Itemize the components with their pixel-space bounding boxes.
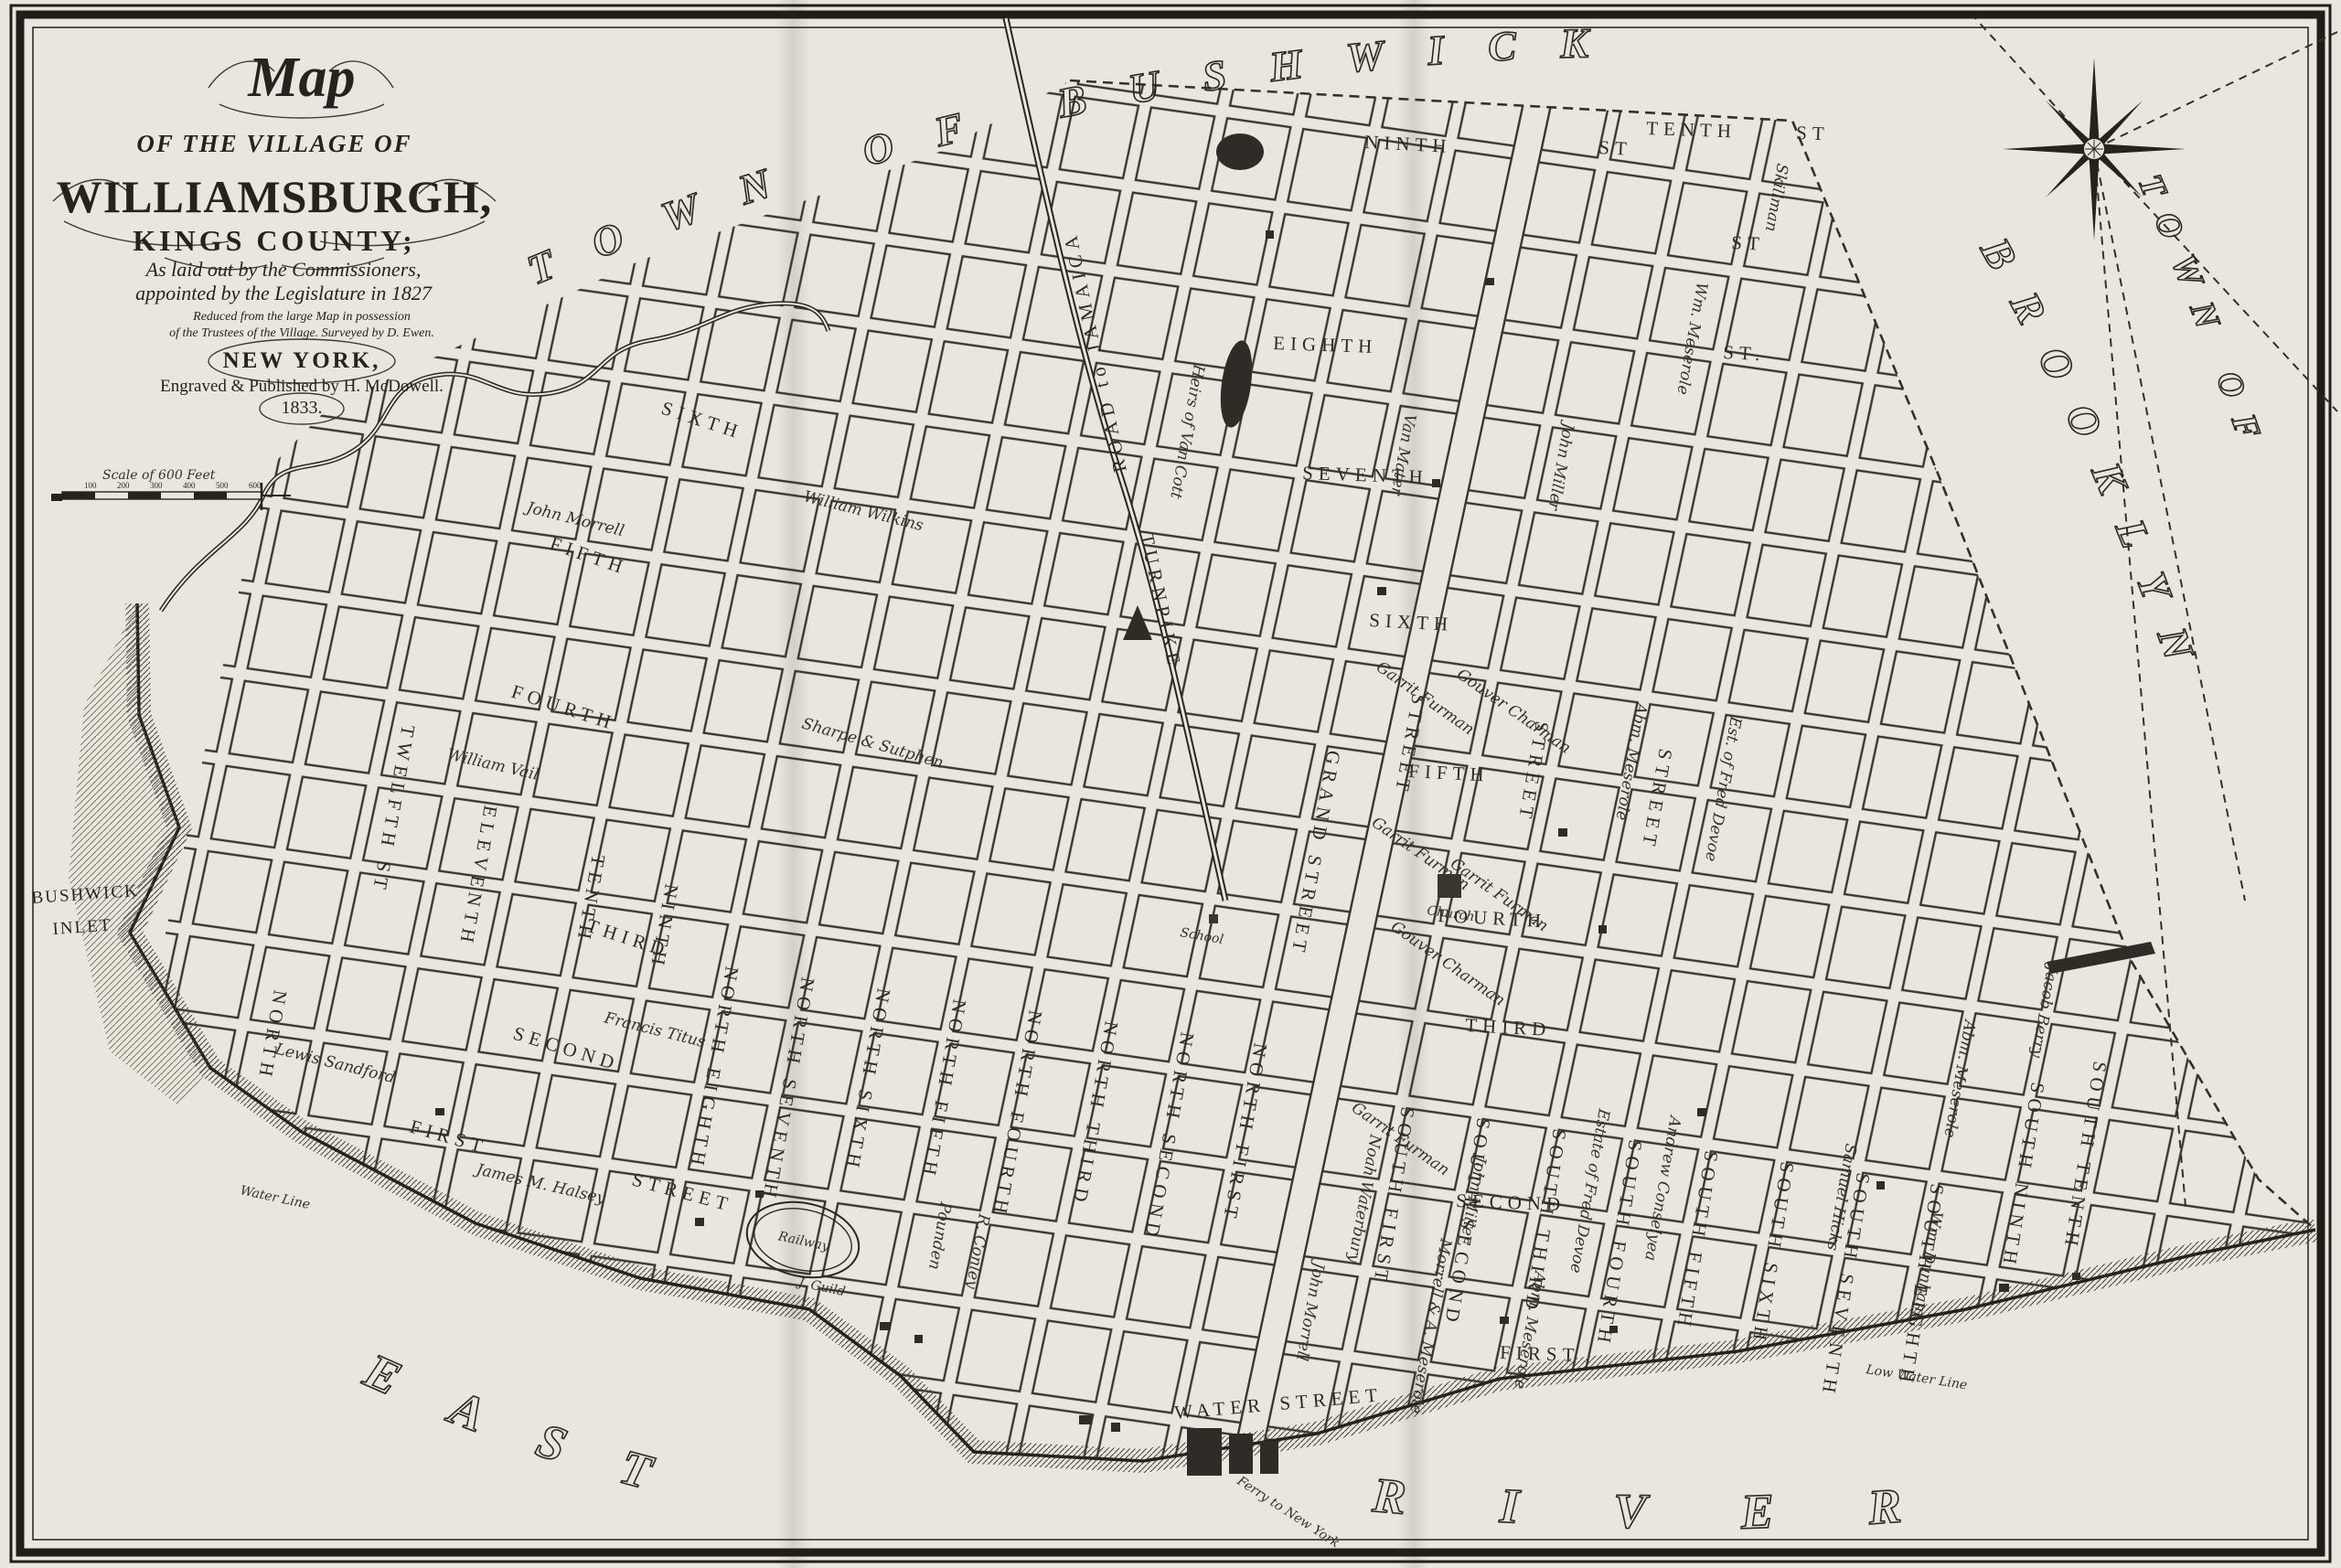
svg-text:ST: ST <box>1731 231 1766 255</box>
svg-text:THIRD: THIRD <box>1465 1014 1552 1040</box>
scale-tick: 100 <box>84 481 97 490</box>
cartouche-newyork: NEW YORK, <box>223 348 381 373</box>
svg-text:FIRST: FIRST <box>1500 1341 1580 1366</box>
cartouche-map-word: Map <box>247 47 355 109</box>
scale-tick: 300 <box>150 481 163 490</box>
cartouche-laid-1: As laid out by the Commissioners, <box>144 258 422 281</box>
scale-tick: 600 <box>249 481 262 490</box>
svg-text:SIXTH: SIXTH <box>1369 609 1454 635</box>
svg-text:TENTH: TENTH <box>1646 117 1737 142</box>
svg-text:ST: ST <box>1598 136 1633 160</box>
cartouche-of-line: OF THE VILLAGE OF <box>136 130 412 157</box>
cartouche-engraved: Engraved & Published by H. McDowell. <box>160 377 444 396</box>
pond <box>1216 133 1264 170</box>
cartouche-title: WILLIAMSBURGH, <box>57 171 493 222</box>
scale-tick: 200 <box>117 481 130 490</box>
scale-tick: 500 <box>216 481 229 490</box>
map-sheet: TOWN OF BUSHWICK TOWN OF BROOKLYN EAST R… <box>0 0 2341 1568</box>
svg-text:NINTH: NINTH <box>1364 131 1452 157</box>
svg-text:EIGHTH: EIGHTH <box>1273 332 1378 357</box>
svg-text:ST: ST <box>1796 122 1830 144</box>
scale-tick: 400 <box>183 481 196 490</box>
svg-text:ST.: ST. <box>1723 341 1766 365</box>
map-canvas: TOWN OF BUSHWICK TOWN OF BROOKLYN EAST R… <box>0 0 2341 1568</box>
cartouche-laid-2: appointed by the Legislature in 1827 <box>135 282 433 304</box>
cartouche-reduced-2: of the Trustees of the Village. Surveyed… <box>169 326 434 340</box>
cartouche-year: 1833. <box>282 398 323 418</box>
cartouche-reduced-1: Reduced from the large Map in possession <box>192 310 411 324</box>
svg-text:FIFTH: FIFTH <box>1408 760 1490 786</box>
cartouche-county: KINGS COUNTY; <box>133 224 416 257</box>
